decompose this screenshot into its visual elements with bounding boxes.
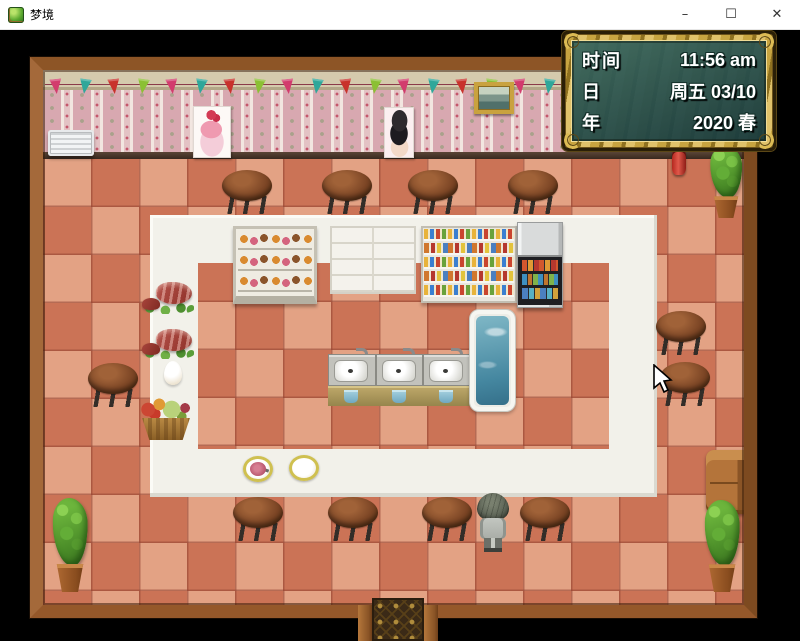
app-icon [8, 7, 24, 23]
meat-piece [142, 298, 160, 310]
pastry-shelf-row [238, 230, 312, 250]
close-button[interactable]: ✕ [754, 0, 800, 30]
goods-row [424, 243, 514, 255]
table-top [660, 362, 710, 393]
round-table [232, 497, 284, 543]
app-window: 梦境 – ☐ ✕ [0, 0, 800, 641]
sink-unit [376, 348, 424, 406]
maximize-button[interactable]: ☐ [708, 0, 754, 30]
roast [156, 282, 192, 304]
empty-plate [289, 455, 319, 481]
minimize-button[interactable]: – [662, 0, 708, 30]
roast-meat-dish [142, 329, 194, 359]
plant-pot [56, 564, 85, 592]
basket-bowl [140, 418, 192, 440]
hud-day-row: 日 周五 03/10 [582, 76, 756, 107]
poster-dark-girl [384, 107, 414, 158]
game-viewport[interactable]: 时间 11:56 am 日 周五 03/10 年 2020 春 [0, 30, 800, 641]
table-top [88, 363, 138, 394]
hud-time-value: 11:56 am [680, 50, 756, 71]
goods-row [424, 257, 514, 269]
round-table [519, 497, 571, 543]
hud-day-label: 日 [582, 78, 602, 104]
fridge-food-row [522, 260, 558, 271]
table-top [328, 497, 378, 528]
fruit-basket [138, 396, 194, 440]
potted-plant-top-right [704, 146, 748, 218]
table-top [656, 311, 706, 342]
sink-cabinet [328, 386, 376, 406]
plate-with-food [243, 456, 273, 482]
goods-row [424, 285, 514, 297]
roast-meat-dish [142, 282, 194, 314]
pastry-shelf-row [238, 272, 312, 292]
framed-painting [474, 82, 514, 114]
poster-pink-girl [193, 106, 231, 158]
sink-unit [423, 348, 471, 406]
door-post [358, 605, 372, 641]
sink-unit [328, 348, 376, 406]
hud-time-row: 时间 11:56 am [582, 45, 756, 76]
potted-plant-bottom-right [698, 500, 746, 592]
goods-row [424, 271, 514, 283]
triple-sink-counter [328, 348, 471, 406]
fridge-open-shelves [518, 257, 562, 305]
round-table [407, 170, 459, 216]
roast [156, 329, 192, 351]
plant-foliage [710, 146, 742, 198]
potted-plant-bottom-left [46, 498, 94, 592]
table-top [520, 497, 570, 528]
round-table [421, 497, 473, 543]
fridge-food-row [522, 288, 558, 299]
plant-pot [708, 564, 737, 592]
character-body [480, 518, 506, 539]
table-top [322, 170, 372, 201]
fridge-food-row [522, 274, 558, 285]
table-top [422, 497, 472, 528]
empty-shelf [330, 226, 416, 294]
plant-foliage [705, 500, 740, 566]
entrance-door-mat [372, 598, 424, 641]
round-table [655, 311, 707, 357]
sink-basin [334, 360, 368, 382]
hud-time-label: 时间 [582, 47, 622, 73]
towel [392, 390, 406, 403]
plant-pot [713, 196, 739, 218]
time-hud: 时间 11:56 am 日 周五 03/10 年 2020 春 [562, 31, 776, 151]
display-fridge [517, 222, 563, 308]
player-character [475, 493, 511, 555]
hud-year-row: 年 2020 春 [582, 107, 756, 138]
hud-panel: 时间 11:56 am 日 周五 03/10 年 2020 春 [571, 40, 767, 142]
round-table [507, 170, 559, 216]
round-table [87, 363, 139, 409]
hud-year-value: 2020 春 [693, 109, 756, 135]
sink-cabinet [423, 386, 471, 406]
towel [344, 390, 358, 403]
hud-day-value: 周五 03/10 [670, 78, 756, 104]
bath-water [476, 316, 509, 405]
window-titlebar[interactable]: 梦境 – ☐ ✕ [0, 0, 800, 30]
plant-foliage [53, 498, 88, 566]
pastry-display-case [233, 226, 317, 304]
window-title: 梦境 [30, 6, 54, 23]
fridge-door [518, 223, 562, 257]
sink-basin [382, 360, 416, 382]
table-top [508, 170, 558, 201]
bathtub [469, 309, 516, 412]
air-conditioner [48, 130, 94, 156]
table-top [408, 170, 458, 201]
sink-basin [429, 360, 463, 382]
character-hair [477, 493, 509, 521]
hud-year-label: 年 [582, 109, 602, 135]
table-top [233, 497, 283, 528]
round-table [321, 170, 373, 216]
stocked-goods-shelf [421, 226, 517, 303]
goods-row [424, 229, 514, 241]
round-table [221, 170, 273, 216]
table-top [222, 170, 272, 201]
hud-ornament [755, 130, 776, 151]
window-controls: – ☐ ✕ [662, 0, 800, 30]
round-table [327, 497, 379, 543]
sink-cabinet [376, 386, 424, 406]
towel [439, 390, 453, 403]
door-post [424, 605, 438, 641]
fire-extinguisher [672, 149, 686, 175]
round-table [659, 362, 711, 408]
character-legs [484, 538, 502, 552]
pastry-shelf-row [238, 251, 312, 271]
egg [164, 361, 182, 385]
meat-piece [142, 343, 160, 355]
